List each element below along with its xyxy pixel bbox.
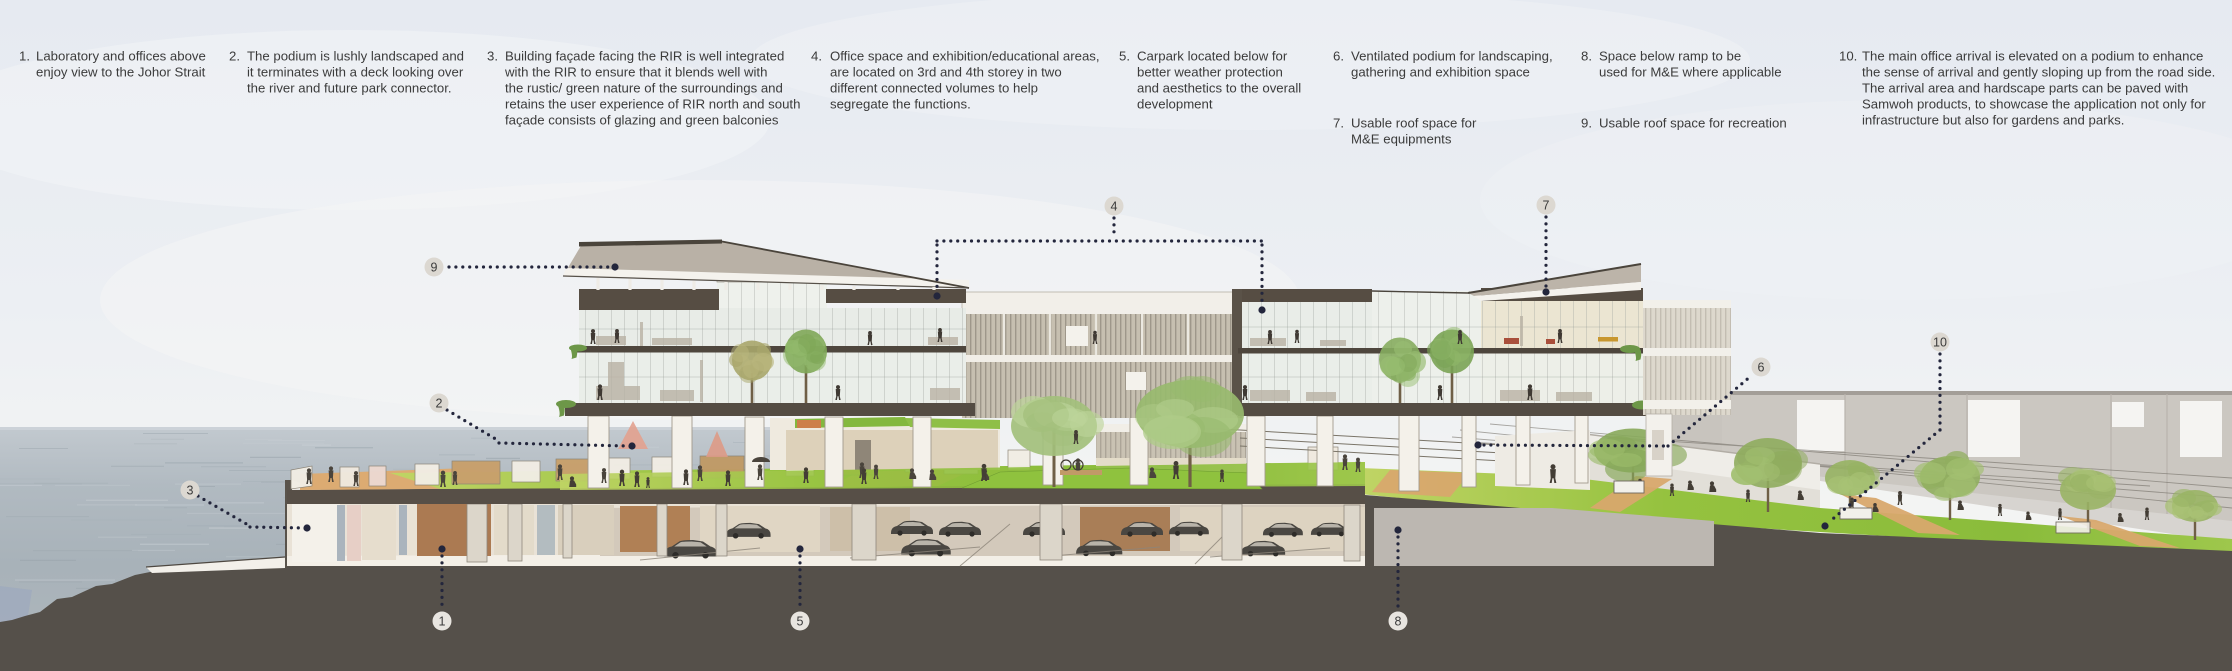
svg-text:the rustic/ green nature of th: the rustic/ green nature of the surround… xyxy=(505,81,783,96)
svg-text:are located on 3rd and 4th sto: are located on 3rd and 4th storey in two xyxy=(830,65,1062,80)
svg-text:8.: 8. xyxy=(1581,49,1592,64)
svg-text:Office space and exhibition/ed: Office space and exhibition/educational … xyxy=(830,49,1100,64)
svg-text:10: 10 xyxy=(1933,336,1947,350)
svg-text:9: 9 xyxy=(431,261,438,275)
svg-text:it terminates with a deck look: it terminates with a deck looking over xyxy=(247,65,464,80)
svg-text:different connected volumes to: different connected volumes to help xyxy=(830,81,1038,96)
svg-text:Ventilated podium for landscap: Ventilated podium for landscaping, xyxy=(1351,49,1553,64)
svg-text:used for M&E where applicable: used for M&E where applicable xyxy=(1599,65,1782,80)
svg-text:M&E equipments: M&E equipments xyxy=(1351,132,1452,147)
svg-text:9.: 9. xyxy=(1581,116,1592,131)
svg-text:4.: 4. xyxy=(811,49,822,64)
svg-text:Space below ramp to be: Space below ramp to be xyxy=(1599,49,1741,64)
svg-text:Samwoh products, to showcase t: Samwoh products, to showcase the applica… xyxy=(1862,97,2206,112)
svg-text:The arrival area and hardscape: The arrival area and hardscape parts can… xyxy=(1862,81,2188,96)
svg-text:3.: 3. xyxy=(487,49,498,64)
svg-text:10.: 10. xyxy=(1839,49,1857,64)
svg-text:6.: 6. xyxy=(1333,49,1344,64)
svg-text:5: 5 xyxy=(797,615,804,629)
svg-text:The main office arrival is ele: The main office arrival is elevated on a… xyxy=(1862,49,2203,64)
svg-text:better weather protection: better weather protection xyxy=(1137,65,1283,80)
svg-text:Usable roof space for: Usable roof space for xyxy=(1351,116,1477,131)
svg-text:with the RIR to ensure that it: with the RIR to ensure that it blends we… xyxy=(504,65,767,80)
svg-text:7: 7 xyxy=(1543,199,1550,213)
svg-text:2.: 2. xyxy=(229,49,240,64)
svg-text:gathering and exhibition space: gathering and exhibition space xyxy=(1351,65,1530,80)
svg-text:infrastructure but also for ga: infrastructure but also for gardens and … xyxy=(1862,113,2124,128)
svg-text:façade consists of glazing and: façade consists of glazing and green bal… xyxy=(505,113,779,128)
svg-text:the river and future park conn: the river and future park connector. xyxy=(247,81,452,96)
svg-text:6: 6 xyxy=(1758,361,1765,375)
svg-text:5.: 5. xyxy=(1119,49,1130,64)
svg-text:4: 4 xyxy=(1111,200,1118,214)
svg-text:7.: 7. xyxy=(1333,116,1344,131)
svg-text:Usable roof space for recreati: Usable roof space for recreation xyxy=(1599,116,1787,131)
svg-text:1: 1 xyxy=(439,615,446,629)
svg-text:retains the user experience of: retains the user experience of RIR north… xyxy=(505,97,800,112)
svg-text:development: development xyxy=(1137,97,1213,112)
svg-text:Carpark located below for: Carpark located below for xyxy=(1137,49,1288,64)
svg-text:8: 8 xyxy=(1395,615,1402,629)
svg-text:2: 2 xyxy=(436,397,443,411)
svg-text:segregate the functions.: segregate the functions. xyxy=(830,97,971,112)
svg-text:and aesthetics to the overall: and aesthetics to the overall xyxy=(1137,81,1301,96)
svg-text:the sense of arrival and gentl: the sense of arrival and gently sloping … xyxy=(1862,65,2215,80)
svg-text:3: 3 xyxy=(187,484,194,498)
svg-text:enjoy view to the Johor Strait: enjoy view to the Johor Strait xyxy=(36,65,206,80)
svg-text:The podium is lushly landscape: The podium is lushly landscaped and xyxy=(247,49,464,64)
svg-text:Building façade facing the RIR: Building façade facing the RIR is well i… xyxy=(505,49,784,64)
svg-text:Laboratory and offices above: Laboratory and offices above xyxy=(36,49,206,64)
svg-text:1.: 1. xyxy=(19,49,30,64)
